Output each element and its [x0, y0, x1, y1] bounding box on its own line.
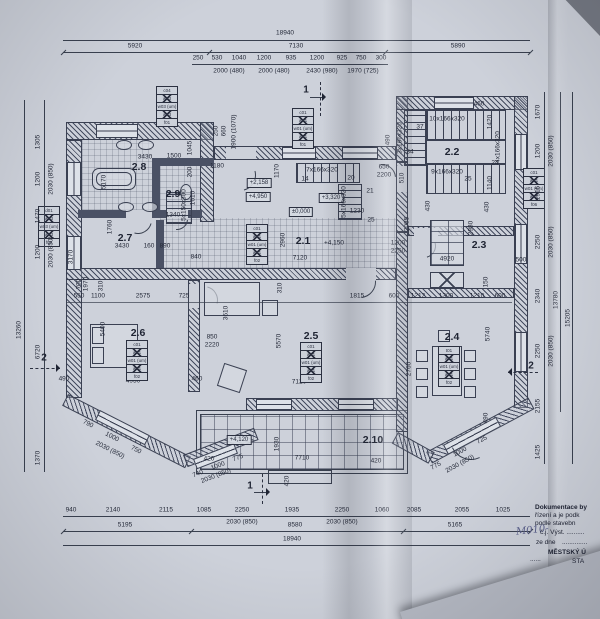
- dim-1970: 1970: [83, 277, 90, 291]
- window-bottom-1: [256, 399, 292, 410]
- dim-2250-23: 2250: [391, 248, 405, 255]
- dim-line-bottom-overall: [63, 545, 530, 546]
- dim-460-stairwell: 460: [474, 101, 485, 108]
- dim-right-2250a: 2250: [535, 235, 542, 249]
- dim-right-2250b: 2250: [535, 344, 542, 358]
- dim-bot-2055: 2055: [455, 507, 469, 514]
- room-num-2-9: 2.9: [166, 188, 181, 200]
- dim-550: 550: [74, 293, 85, 300]
- dim-490-24: 490: [483, 413, 490, 424]
- dim-top-1200b: 1200: [310, 55, 324, 62]
- dim-bot-8580: 8580: [288, 522, 302, 529]
- section-mark-1-top: 1: [303, 85, 309, 96]
- coffee-table: [217, 363, 247, 393]
- dim-2200: 2200: [377, 172, 391, 179]
- dim-700: 700: [76, 279, 83, 290]
- dim-bot-open1: 2030 (850): [226, 519, 257, 526]
- spec-row: c01: [247, 225, 267, 233]
- stamp-dots: ......: [530, 556, 541, 564]
- chair-2: [416, 368, 428, 380]
- section-line-2-right: [508, 372, 538, 373]
- dim-510: 510: [399, 173, 406, 184]
- room-num-2-3: 2.3: [472, 239, 487, 251]
- dim-1815: 1815: [350, 293, 364, 300]
- dim-660-top: 660: [221, 126, 228, 137]
- dim-bot-1935: 1935: [285, 507, 299, 514]
- dim-line-bottom-detail: [63, 516, 530, 517]
- dim-left-1305: 1305: [35, 135, 42, 149]
- dim-1140: 1140: [487, 176, 494, 190]
- section-mark-2-left: 2: [41, 353, 47, 364]
- chair-1: [416, 350, 428, 362]
- dim-150: 150: [483, 277, 490, 288]
- dim-bay-2030a: 2030 (850): [94, 440, 125, 461]
- spec-marker-a: c04 w03 w03 (um) w03 f01: [156, 86, 178, 127]
- dim-bot-2115: 2115: [159, 507, 173, 514]
- spec-row: f01: [157, 119, 177, 126]
- stamp-line-6: MĚSTSKÝ Ú: [548, 549, 586, 557]
- spec-row: w01: [301, 351, 321, 359]
- spec-row: w01: [301, 367, 321, 375]
- spec-marker-b: c01 w01 w01 (um) w01 f01: [292, 108, 314, 149]
- spec-row: w01: [293, 133, 313, 141]
- chair-3: [416, 386, 428, 398]
- stamp-line-5: ze dne: [536, 539, 556, 547]
- dim-3170: 3170: [68, 250, 75, 264]
- dim-3430-bath: 3430: [138, 154, 152, 161]
- spec-row: d01: [39, 207, 59, 215]
- chair-5: [464, 368, 476, 380]
- elevation-4120: +4,120: [227, 435, 252, 445]
- dim-310-26: 310: [98, 281, 105, 292]
- dim-850: 850: [207, 334, 218, 341]
- spec-row: c04: [157, 87, 177, 95]
- section-line-1-top: [320, 82, 321, 116]
- spec-marker-e: c01 w01 w01 (um) w01 f02: [246, 224, 268, 265]
- stairwell-spec-right: 4x166x320: [495, 131, 502, 163]
- dim-500: 500: [516, 257, 527, 264]
- dim-2220: 2220: [205, 342, 219, 349]
- dim-line-top-overall: [63, 40, 530, 41]
- dim-top-open1: 2000 (480): [213, 68, 244, 75]
- spec-row: c01: [127, 341, 147, 349]
- dim-430-23: 430: [425, 201, 432, 212]
- dim-1180: 1180: [210, 163, 224, 170]
- dim-bot-1025: 1025: [496, 507, 510, 514]
- dim-420-a: 420: [204, 456, 215, 463]
- dim-1610: 1610: [190, 191, 197, 205]
- dim-top-925: 925: [337, 55, 348, 62]
- dim-bot-1060: 1060: [375, 507, 389, 514]
- spec-marker-h: t01 w01 w01 (um) w01 f02: [438, 346, 460, 387]
- dim-1420: 1420: [487, 115, 494, 129]
- section-mark-1-bottom: 1: [247, 481, 253, 492]
- dim-line-bottom-seg: [63, 531, 530, 532]
- dim-3430-27: 3430: [115, 243, 129, 250]
- dim-bot-2250b: 2250: [335, 507, 349, 514]
- spec-row: w01: [247, 249, 267, 257]
- dim-420-b: 420: [371, 458, 382, 465]
- dim-top-935: 935: [286, 55, 297, 62]
- spec-row: w03: [157, 95, 177, 103]
- stamp-line-7: STA: [572, 558, 584, 566]
- bed-pillow-2: [92, 347, 104, 364]
- dim-right-2340: 2340: [535, 289, 542, 303]
- sink-2: [138, 140, 154, 150]
- window-right-1: [515, 134, 527, 170]
- dim-top-5920: 5920: [128, 43, 142, 50]
- dim-1045: 1045: [187, 141, 194, 155]
- dim-bot-5165: 5165: [448, 522, 462, 529]
- dim-left-1200b: 1200: [35, 245, 42, 259]
- spec-row: c01: [301, 343, 321, 351]
- window-left-1: [67, 162, 81, 196]
- dim-tick: [528, 50, 534, 56]
- spec-row: w01: [127, 349, 147, 357]
- spec-row: t01: [439, 347, 459, 355]
- stair-step-14: 14: [301, 176, 308, 183]
- stair-spec-entry: 5x150x300: [181, 189, 188, 221]
- section-arrow-head: [266, 488, 274, 496]
- dim-310-21: 310: [277, 283, 284, 294]
- section-mark-2-right: 2: [528, 361, 534, 372]
- partition-29-top: [152, 158, 214, 166]
- wall-top-left: [66, 122, 214, 140]
- window-top-left: [96, 124, 138, 138]
- dim-2760: 2760: [406, 362, 413, 376]
- wall-step: [200, 122, 214, 222]
- room-num-2-5: 2.5: [304, 330, 319, 342]
- window-bottom-2: [338, 399, 374, 410]
- dim-left-open2: 2030 (850): [48, 236, 55, 267]
- room-num-2-4: 2.4: [445, 331, 460, 343]
- sink-3: [118, 202, 134, 212]
- sofa: [204, 282, 260, 316]
- spec-row: w03 (um): [157, 103, 177, 111]
- spec-row: w01: [247, 233, 267, 241]
- spec-row: w01: [524, 177, 544, 185]
- dim-5400: 5400: [100, 322, 107, 336]
- spec-row: f02: [247, 257, 267, 264]
- dim-1170: 1170: [274, 164, 281, 178]
- dim-1200-23: 1200: [391, 240, 405, 247]
- dim-line-right-detail: [544, 92, 545, 464]
- dim-7710: 7710: [295, 455, 309, 462]
- dim-top-1040: 1040: [232, 55, 246, 62]
- dim-1210: 1210: [470, 293, 484, 300]
- dim-top-530: 530: [212, 55, 223, 62]
- spec-row: f02: [439, 379, 459, 386]
- dim-1212: 1212: [411, 293, 425, 300]
- dim-top-7130: 7130: [289, 43, 303, 50]
- dim-4920-23: 4920: [440, 256, 454, 263]
- dim-top-750: 750: [356, 55, 367, 62]
- spec-row: w03: [157, 111, 177, 119]
- dim-1930: 1930: [274, 437, 281, 451]
- dim-2085: 2085: [404, 217, 411, 231]
- dim-430-stairwell: 430: [484, 202, 491, 213]
- dim-right-open2: 2030 (850): [548, 226, 555, 257]
- dim-bot-overall: 18940: [283, 536, 301, 543]
- window-top-center-2: [342, 147, 378, 159]
- dim-5170: 5170: [101, 175, 108, 189]
- window-bay-left-a: [95, 410, 150, 445]
- dim-left-1200a: 1200: [35, 172, 42, 186]
- spec-row: w01 (um): [247, 241, 267, 249]
- dim-right-15205: 15205: [565, 309, 572, 327]
- dim-bay-750: 750: [130, 444, 143, 455]
- dim-2960: 2960: [280, 233, 287, 247]
- section-arrow-head: [504, 368, 512, 376]
- spec-row: w01: [293, 117, 313, 125]
- dim-2980: 2980: [468, 221, 475, 235]
- dim-line-right-total1: [560, 92, 561, 412]
- sink-1: [116, 140, 132, 150]
- dim-890: 890: [160, 243, 171, 250]
- chair-4: [464, 350, 476, 362]
- room-num-2-10: 2.10: [363, 434, 383, 446]
- stairwell-spec-bottom: 9x166x320: [431, 169, 463, 176]
- section-line-1-bottom: [262, 474, 263, 504]
- spec-row: w01: [439, 371, 459, 379]
- dim-200: 200: [187, 167, 194, 178]
- stamp-line-4: č.j. Výst. ..........: [540, 529, 584, 537]
- elevation-2158: +2,158: [247, 178, 272, 188]
- dim-bot-2250a: 2250: [235, 507, 249, 514]
- chair-6: [464, 386, 476, 398]
- stair-step-21: 21: [366, 188, 373, 195]
- dim-1230: 1230: [350, 208, 364, 215]
- stairwell-spec-left: 3x166x320: [397, 122, 404, 154]
- dim-left-overall: 13260: [16, 321, 23, 339]
- stamp-line-5b: ..............: [562, 539, 587, 547]
- dim-725-mid: 725: [179, 293, 190, 300]
- dim-420-c: 420: [284, 476, 291, 487]
- dim-bot-2140: 2140: [106, 507, 120, 514]
- dim-top-overall: 18940: [276, 30, 294, 37]
- room-num-2-6: 2.6: [131, 327, 146, 339]
- dim-right-1200: 1200: [535, 144, 542, 158]
- dim-600-a: 600: [389, 293, 400, 300]
- spec-marker-f: c01 w01 w01 (um) w01 f02: [126, 340, 148, 381]
- window-right-3: [515, 332, 527, 372]
- dim-left-1370: 1370: [35, 451, 42, 465]
- dim-5570: 5570: [276, 334, 283, 348]
- dim-right-open1: 2030 (850): [548, 135, 555, 166]
- stair-spec-hall-b: 5x166x320: [341, 186, 348, 218]
- dim-line-top-detail: [192, 64, 388, 65]
- dim-left-open1: 2030 (850): [48, 163, 55, 194]
- dim-1760: 1760: [107, 220, 114, 234]
- dim-right-13780: 13780: [553, 291, 560, 309]
- dim-left-1470: 1470: [35, 209, 42, 223]
- dim-top-300: 300: [376, 55, 387, 62]
- dim-top-1200a: 1200: [257, 55, 271, 62]
- spec-row: w03 (um): [39, 223, 59, 231]
- corridor-tile-floor: [160, 218, 396, 268]
- spec-row: f02: [127, 373, 147, 380]
- dim-line-top-seg: [63, 52, 530, 53]
- spec-row: w03: [39, 215, 59, 223]
- dim-490-hall: 490: [385, 135, 392, 146]
- dim-top-250: 250: [193, 55, 204, 62]
- dim-right-1915: 1915: [535, 186, 542, 200]
- spec-row: w01 (um): [127, 357, 147, 365]
- dim-line-left-overall: [24, 100, 25, 472]
- spec-row: w01: [127, 365, 147, 373]
- dim-bot-1085: 1085: [197, 507, 211, 514]
- spec-row: c01: [293, 109, 313, 117]
- dim-1340: 1340: [166, 212, 180, 219]
- dim-bot-940: 940: [66, 507, 77, 514]
- dim-line-right-total2: [572, 92, 573, 464]
- stair-spec-hall: 7x166x320: [306, 167, 338, 174]
- spec-row: f06: [524, 201, 544, 208]
- spec-row: w01 (um): [293, 125, 313, 133]
- stairwell-flight-left: [404, 110, 426, 166]
- dim-line-left-detail: [44, 100, 45, 472]
- dim-right-1670: 1670: [535, 105, 542, 119]
- section-arrow-head: [56, 364, 64, 372]
- dim-1500: 1500: [167, 153, 181, 160]
- kitchen-counter: [430, 272, 464, 288]
- sink-4: [142, 202, 158, 212]
- dim-right-open3: 2030 (850): [548, 335, 555, 366]
- stairwell-step-37: 37: [416, 124, 423, 131]
- dim-top-open2: 2000 (480): [258, 68, 289, 75]
- dim-1100: 1100: [91, 293, 105, 300]
- terrace-step: [268, 470, 332, 484]
- section-arrow-1-bot: [254, 492, 266, 493]
- dim-490-26: 490: [59, 376, 70, 383]
- stair-step-25: 25: [367, 217, 374, 224]
- dim-bot-5195: 5195: [118, 522, 132, 529]
- dim-top-open4: 1970 (725): [347, 68, 378, 75]
- elevation-4950: +4,950: [246, 192, 271, 202]
- dim-250-top: 250: [213, 126, 220, 137]
- dim-top-open3: 2430 (980): [306, 68, 337, 75]
- dim-2575: 2575: [136, 293, 150, 300]
- window-top-right: [434, 97, 474, 109]
- dim-650: 650: [379, 164, 390, 171]
- stairwell-spec-top: 10x166x320: [429, 116, 464, 123]
- dim-top-5890: 5890: [451, 43, 465, 50]
- room-num-2-2: 2.2: [445, 146, 460, 158]
- stamp-line-1: Dokumentace by: [535, 504, 587, 512]
- spec-row: c01: [524, 169, 544, 177]
- spec-row: f02: [301, 375, 321, 382]
- dim-bot-2085: 2085: [407, 507, 421, 514]
- dim-bot-open2: 2030 (850): [326, 519, 357, 526]
- spec-row: w01 (um): [439, 363, 459, 371]
- dim-line-mid: [66, 302, 512, 303]
- dim-1300: 1300: [439, 293, 453, 300]
- dim-7120-corridor: 7120: [293, 255, 307, 262]
- elevation-0000: ±0,000: [289, 207, 313, 217]
- dim-right-1425: 1425: [535, 445, 542, 459]
- spec-row: w01 (um): [301, 359, 321, 367]
- dim-600-b: 600: [495, 293, 506, 300]
- room-num-2-8: 2.8: [132, 161, 147, 173]
- floor-plan-sheet: 2.1 2.2 2.3 2.4 2.5 2.6 2.7 2.8 2.9 2.10…: [0, 0, 600, 619]
- dim-1900: 1900 (1070): [231, 114, 238, 149]
- stair-step-20: 20: [347, 175, 354, 182]
- dim-right-2155: 2155: [535, 399, 542, 413]
- dim-160: 160: [144, 243, 155, 250]
- room-num-2-1: 2.1: [296, 235, 311, 247]
- dim-5740: 5740: [485, 327, 492, 341]
- stairwell-step-34: 34: [406, 149, 413, 156]
- section-arrow-head: [322, 93, 330, 101]
- stairwell-step-25: 25: [464, 176, 471, 183]
- spec-row: w01: [439, 355, 459, 363]
- dim-3610: 3610: [223, 306, 230, 320]
- dim-460-26: 460: [192, 376, 203, 383]
- elevation-4150: +4,150: [324, 240, 344, 247]
- spec-marker-g: c01 w01 w01 (um) w01 f02: [300, 342, 322, 383]
- dim-840: 840: [191, 254, 202, 261]
- stamp-line-2: řízení a je podk: [535, 512, 579, 520]
- page-corner-top-right: [556, 0, 600, 36]
- spec-row: f01: [293, 141, 313, 148]
- stairwell-step-24: 24: [491, 160, 498, 167]
